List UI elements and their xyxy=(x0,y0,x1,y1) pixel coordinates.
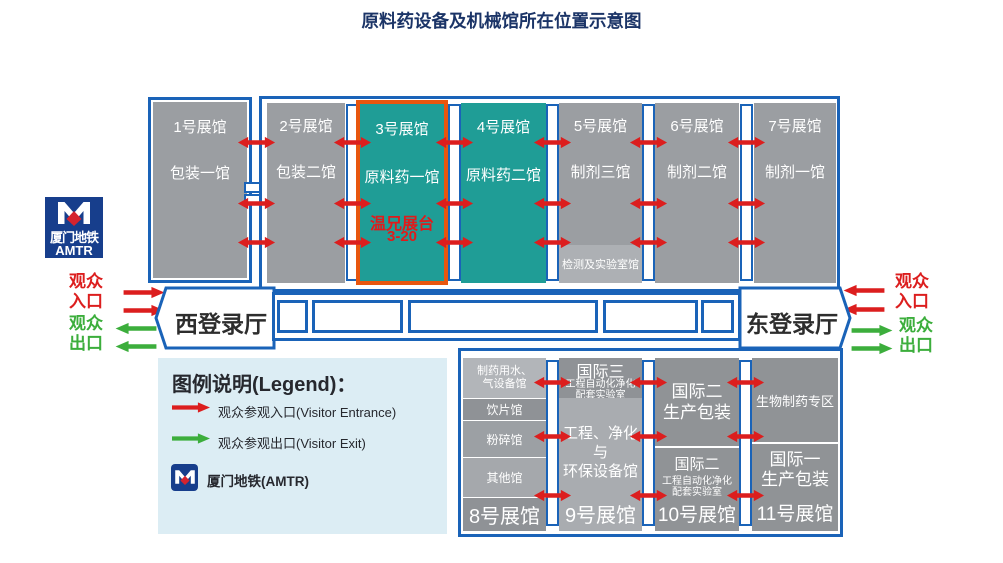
hall-name: 2号展馆 xyxy=(267,115,345,136)
double-arrow-icon xyxy=(628,197,669,210)
exit-arrow-icon xyxy=(114,340,158,353)
legend-box: 图例说明(Legend)： 观众参观入口(Visitor Entrance) 观… xyxy=(158,358,447,534)
hall-name: 7号展馆 xyxy=(754,115,836,136)
hall-1: 1号展馆 包装一馆 xyxy=(148,97,252,283)
double-arrow-icon xyxy=(434,136,475,149)
hall-10-bottom-title: 国际二 xyxy=(655,453,739,474)
hall-subtitle: 原料药一馆 xyxy=(360,166,444,187)
double-arrow-icon xyxy=(628,136,669,149)
exit-arrow-icon xyxy=(114,322,158,335)
hall-name: 5号展馆 xyxy=(559,115,642,136)
metro-name-en: AMTR xyxy=(45,244,103,257)
aisle xyxy=(448,104,461,281)
aisle xyxy=(642,104,655,281)
hall-3-highlighted: 3号展馆 原料药一馆 温兄展台 3-20 xyxy=(356,100,448,285)
double-arrow-icon xyxy=(236,197,277,210)
double-arrow-icon xyxy=(332,236,373,249)
hall-8-section: 饮片馆 xyxy=(463,399,546,420)
east-hall-label: 东登录厅 xyxy=(744,305,840,339)
double-arrow-icon xyxy=(434,236,475,249)
corridor-booth xyxy=(312,300,403,333)
double-arrow-icon xyxy=(434,197,475,210)
right-entrance-label: 观众 入口 xyxy=(884,272,940,312)
double-arrow-icon xyxy=(628,236,669,249)
double-arrow-icon xyxy=(332,136,373,149)
corridor-booth xyxy=(603,300,698,333)
hall-subtitle: 制剂一馆 xyxy=(754,161,836,182)
page-title: 原料药设备及机械馆所在位置示意图 xyxy=(0,8,1003,33)
hall-subtitle: 包装二馆 xyxy=(267,161,345,182)
double-arrow-icon xyxy=(725,376,766,389)
double-arrow-icon xyxy=(628,430,669,443)
aisle xyxy=(740,104,753,281)
legend-exit-label: 观众参观出口(Visitor Exit) xyxy=(218,433,366,452)
hall-11-bottom-label: 国际一 生产包装 xyxy=(752,450,838,490)
hall-subtitle: 包装一馆 xyxy=(153,162,247,183)
left-entrance-label: 观众 入口 xyxy=(58,272,114,312)
legend-metro-label: 厦门地铁(AMTR) xyxy=(207,470,309,490)
double-arrow-icon xyxy=(532,236,573,249)
left-exit-label: 观众 出口 xyxy=(58,314,114,354)
double-arrow-icon xyxy=(726,136,767,149)
hall-11-name: 11号展馆 xyxy=(752,499,838,526)
double-arrow-icon xyxy=(725,489,766,502)
double-arrow-icon xyxy=(532,489,573,502)
hall-subtitle: 原料药二馆 xyxy=(461,164,546,185)
corridor-booth xyxy=(408,300,598,333)
double-arrow-icon xyxy=(236,136,277,149)
double-arrow-icon xyxy=(236,236,277,249)
double-arrow-icon xyxy=(726,236,767,249)
hall-8-name: 8号展馆 xyxy=(463,498,546,531)
entrance-arrow-icon xyxy=(172,401,210,414)
hall-10-name: 10号展馆 xyxy=(655,500,739,527)
metro-m-icon xyxy=(56,200,92,226)
double-arrow-icon xyxy=(725,430,766,443)
double-arrow-icon xyxy=(332,197,373,210)
exit-arrow-icon xyxy=(172,432,210,445)
west-hall-label: 西登录厅 xyxy=(170,305,272,339)
hall-9-body: 工程、净化与 环保设备馆 9号展馆 xyxy=(559,398,642,531)
hall-5-footer: 检测及实验室馆 xyxy=(559,245,642,283)
xiamen-metro-logo: 厦门地铁 AMTR xyxy=(45,197,103,258)
legend-title: 图例说明(Legend)： xyxy=(172,368,356,397)
double-arrow-icon xyxy=(726,197,767,210)
hall-9-name: 9号展馆 xyxy=(559,499,642,528)
hall-subtitle: 制剂三馆 xyxy=(559,161,642,182)
double-arrow-icon xyxy=(532,197,573,210)
hall-6: 6号展馆 制剂二馆 xyxy=(655,103,739,283)
aisle xyxy=(546,104,559,281)
venue-map: 原料药设备及机械馆所在位置示意图 厦门地铁 AMTR 观众 入口 观众 出口 观… xyxy=(0,0,1003,563)
double-arrow-icon xyxy=(532,430,573,443)
double-arrow-icon xyxy=(628,489,669,502)
legend-entrance-label: 观众参观入口(Visitor Entrance) xyxy=(218,402,396,421)
double-arrow-icon xyxy=(532,376,573,389)
right-exit-label: 观众 出口 xyxy=(888,316,944,356)
corridor-booth xyxy=(277,300,308,333)
metro-m-icon xyxy=(174,469,196,485)
hall-4: 4号展馆 原料药二馆 xyxy=(461,103,546,283)
hall-subtitle: 制剂二馆 xyxy=(655,161,739,182)
hall-7: 7号展馆 制剂一馆 xyxy=(754,103,836,283)
double-arrow-icon xyxy=(628,376,669,389)
hall-2: 2号展馆 包装二馆 xyxy=(267,103,345,283)
corridor-booth xyxy=(701,300,734,333)
xiamen-metro-mini-logo xyxy=(171,464,198,491)
double-arrow-icon xyxy=(532,136,573,149)
hall-name: 4号展馆 xyxy=(461,116,546,137)
hall-11-bottom-section: 国际一 生产包装 11号展馆 xyxy=(752,444,838,531)
hall-name: 1号展馆 xyxy=(153,116,247,137)
hall-name: 6号展馆 xyxy=(655,115,739,136)
hall-5: 5号展馆 制剂三馆 检测及实验室馆 xyxy=(559,103,642,283)
